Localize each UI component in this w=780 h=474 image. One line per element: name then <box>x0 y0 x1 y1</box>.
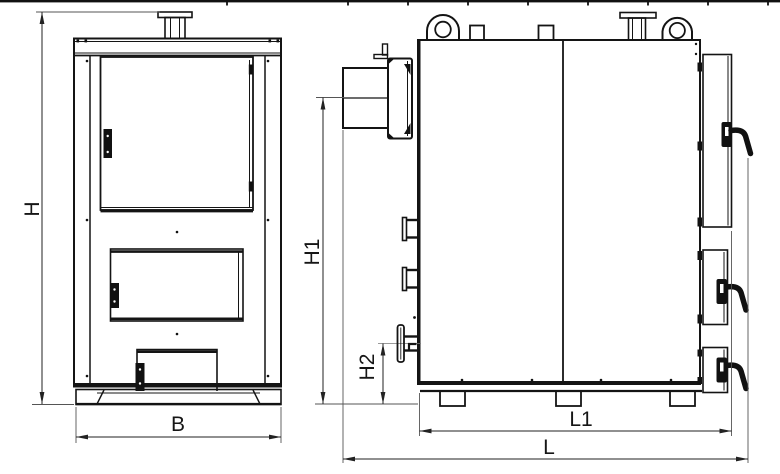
dim-label-B: B <box>156 414 200 436</box>
rear-pipe-stub-upper <box>403 218 419 241</box>
dimension-lines <box>32 12 748 463</box>
middle-door-handle <box>727 287 747 310</box>
dim-label-H2: H2 <box>357 345 379 389</box>
side-upper-door <box>703 55 751 228</box>
lifting-lug-front <box>663 18 693 40</box>
front-base <box>76 390 281 405</box>
upper-door-handle <box>731 130 751 153</box>
dim-label-L: L <box>527 437 571 459</box>
middle-door-latch <box>110 283 119 308</box>
boiler-line-drawing <box>0 0 780 474</box>
rear-pipe-stub-lower <box>403 268 419 291</box>
side-base-feet <box>420 391 702 406</box>
flue-outlet <box>343 44 412 139</box>
dim-label-H1: H1 <box>302 230 324 274</box>
return-connection <box>378 316 421 362</box>
upper-door-hinge <box>249 182 253 192</box>
top-outlet-flange-pipe <box>620 13 656 41</box>
ash-door-latch <box>136 363 145 391</box>
lifting-lug-rear <box>427 15 459 40</box>
upper-door-latch <box>104 129 113 158</box>
frame-bolts <box>77 40 280 378</box>
side-view <box>343 13 751 407</box>
side-middle-door <box>703 250 746 325</box>
front-upper-door <box>101 57 254 211</box>
side-ash-door <box>703 348 746 393</box>
dim-label-H: H <box>22 187 44 231</box>
sheet-top-border <box>0 0 780 6</box>
front-view <box>74 12 281 405</box>
top-stub <box>539 26 554 41</box>
upper-door-hinge <box>249 65 253 75</box>
front-top-flange <box>158 12 192 39</box>
ash-door-handle <box>727 365 747 388</box>
drawing-sheet: H B H1 H2 L1 L <box>0 0 780 474</box>
side-bolt-dots <box>461 43 698 382</box>
side-body <box>418 40 700 384</box>
top-stub <box>470 26 484 41</box>
front-middle-door <box>110 249 243 321</box>
dim-label-L1: L1 <box>559 409 603 431</box>
